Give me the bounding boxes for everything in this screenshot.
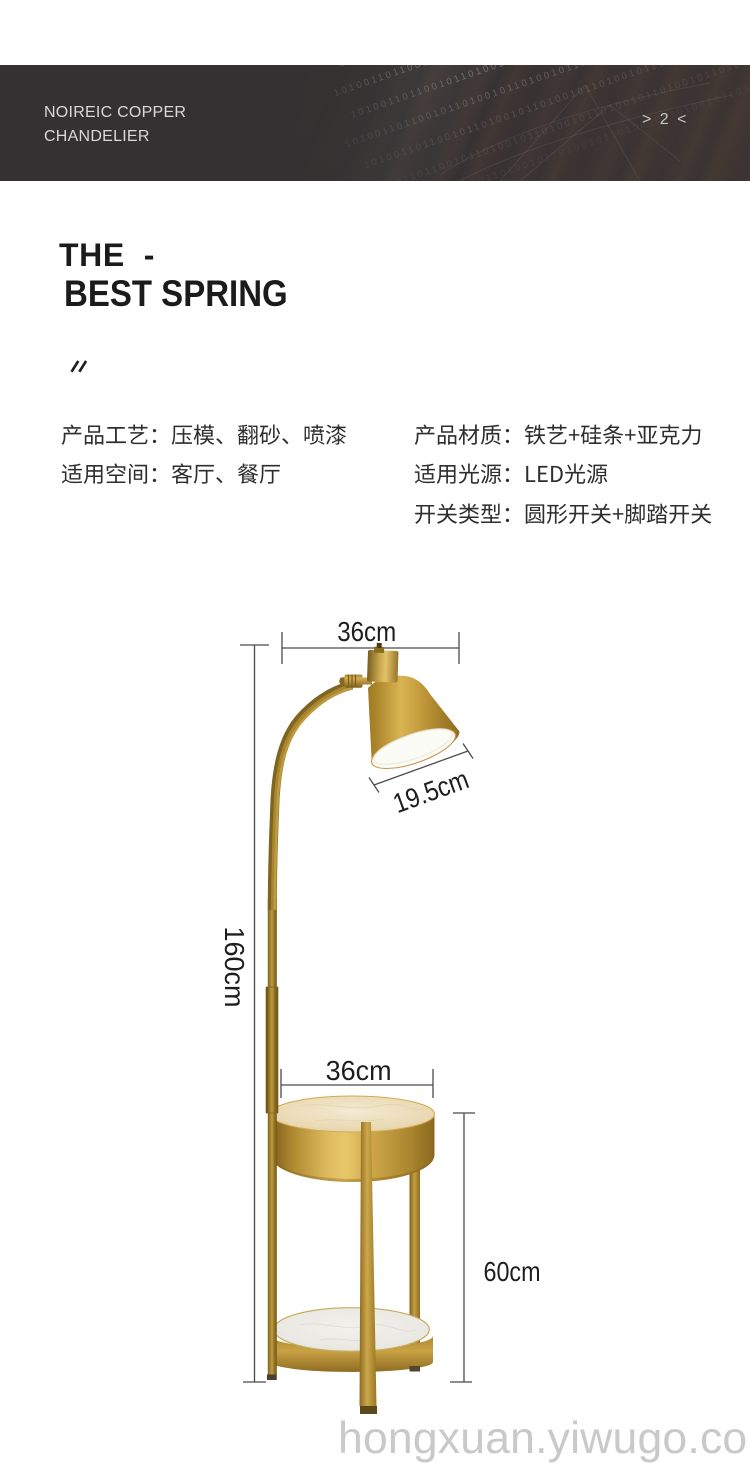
svg-text:36cm: 36cm [337,616,396,647]
svg-text:160cm: 160cm [219,927,250,1008]
svg-text:36cm: 36cm [326,1055,392,1086]
svg-text:60cm: 60cm [484,1256,541,1287]
svg-text:19.5cm: 19.5cm [389,763,473,819]
